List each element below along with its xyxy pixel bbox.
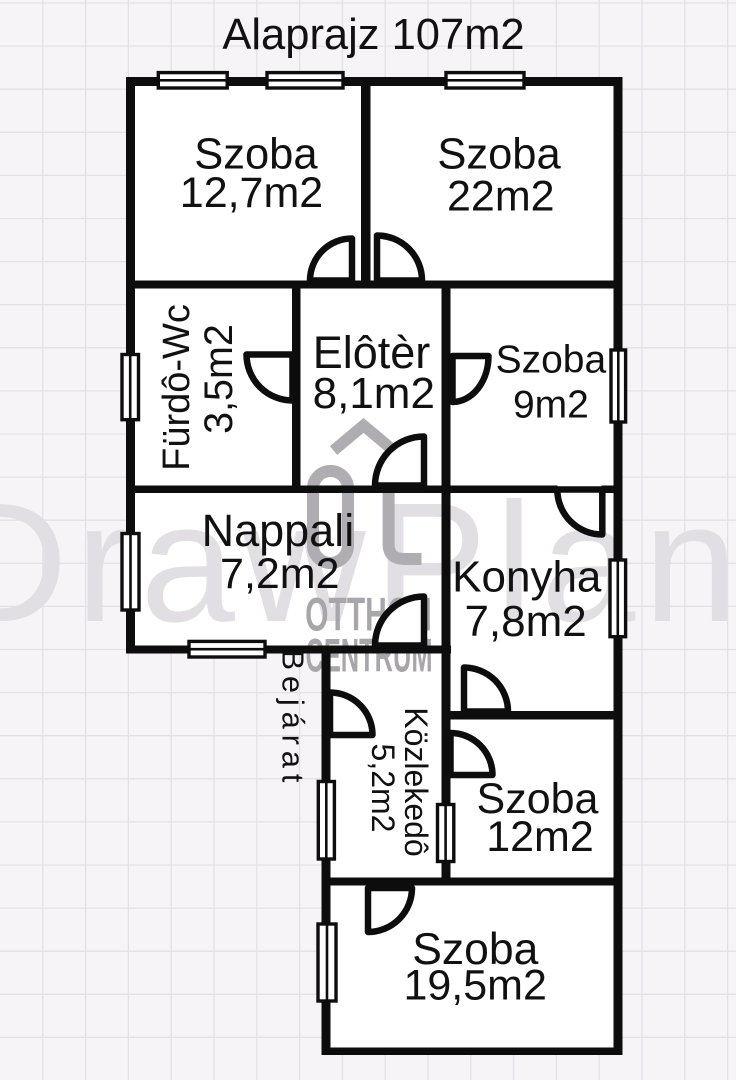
svg-text:Bejárat: Bejárat [276, 650, 310, 789]
svg-text:Nappali: Nappali [202, 505, 355, 556]
svg-text:12,7m2: 12,7m2 [180, 169, 323, 217]
svg-text:8,1m2: 8,1m2 [313, 369, 435, 418]
svg-text:Közlekedô: Közlekedô [398, 707, 434, 856]
svg-text:19,5m2: 19,5m2 [403, 962, 546, 1010]
svg-text:Szoba: Szoba [437, 130, 561, 178]
svg-text:Konyha: Konyha [452, 553, 602, 602]
svg-text:Alaprajz 107m2: Alaprajz 107m2 [222, 11, 524, 59]
svg-text:22m2: 22m2 [447, 173, 555, 221]
svg-text:5,2m2: 5,2m2 [365, 744, 401, 833]
svg-text:Fürdô-Wc: Fürdô-Wc [156, 304, 198, 471]
svg-text:7,2m2: 7,2m2 [220, 550, 340, 598]
svg-text:Szoba: Szoba [496, 339, 607, 382]
svg-text:9m2: 9m2 [513, 384, 589, 427]
svg-text:12m2: 12m2 [486, 813, 594, 861]
svg-text:3,5m2: 3,5m2 [197, 324, 241, 434]
svg-text:7,8m2: 7,8m2 [464, 597, 586, 646]
